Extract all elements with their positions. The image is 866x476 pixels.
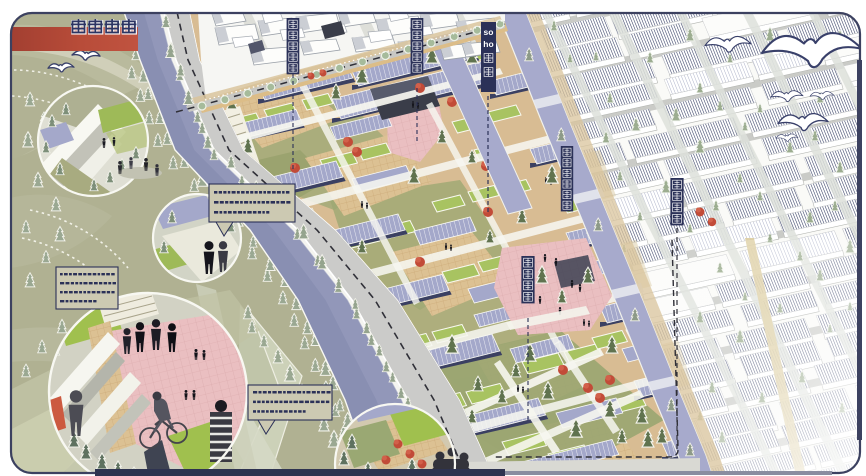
svg-text:ho: ho [483, 39, 493, 49]
svg-text:so: so [484, 27, 494, 37]
